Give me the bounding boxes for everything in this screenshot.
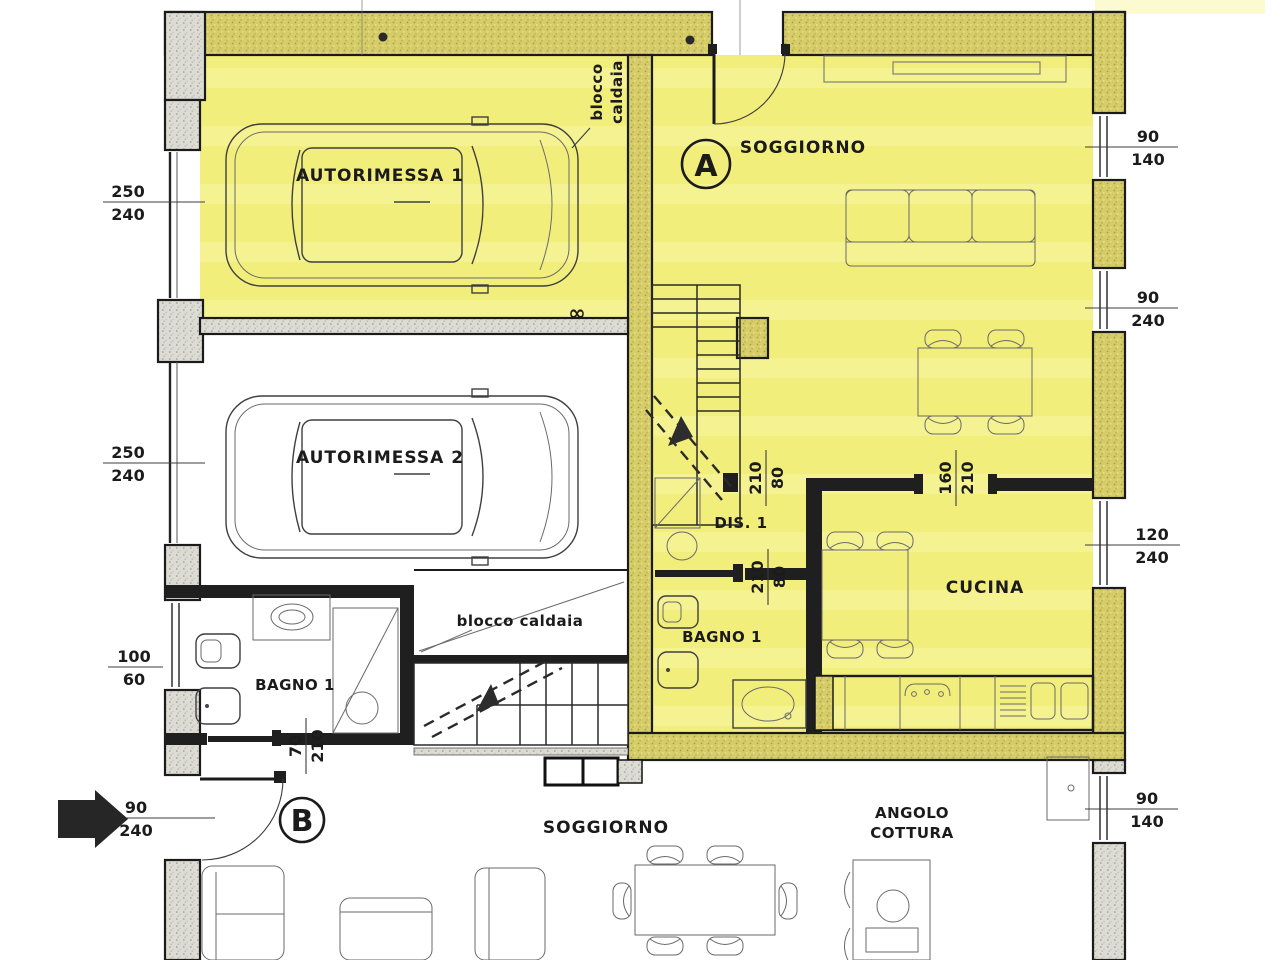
socket-dot-icon	[379, 33, 388, 42]
central-wall-strip	[628, 55, 652, 733]
label-cucina: CUCINA	[946, 578, 1024, 598]
top-left-corner-pier	[165, 12, 205, 100]
dim-text: 80	[770, 566, 789, 588]
unit-separation-wall	[628, 733, 1125, 760]
floor-plan-svg: 250 240 250 240 90 140 90 240 120 240 90…	[0, 0, 1280, 960]
dim-text: 90	[125, 798, 147, 817]
bagno-b-right-wall	[400, 585, 414, 745]
bagno-b-top-wall	[165, 585, 414, 598]
stairs-unit-b	[414, 660, 628, 755]
dim-text: 70	[286, 735, 305, 757]
stair-b-landing-edge	[414, 748, 628, 755]
dim-text: 60	[123, 670, 145, 689]
label-soggiorno-a: SOGGIORNO	[740, 138, 866, 158]
infinity-mark: ∞	[568, 301, 586, 325]
label-bagno1-b: BAGNO 1	[255, 676, 335, 694]
dim-text: 240	[111, 466, 144, 485]
dim-text: 210	[748, 560, 767, 593]
label-autorimessa2: AUTORIMESSA 2	[296, 448, 464, 468]
unit-a-letter: A	[694, 149, 718, 184]
dim-text: 90	[1136, 789, 1158, 808]
top-wall-right	[783, 12, 1125, 55]
dim-text: 240	[111, 205, 144, 224]
dim-text: 250	[111, 443, 144, 462]
label-dis1: DIS. 1	[714, 514, 767, 532]
dim-text: 120	[1135, 525, 1168, 544]
garage-separation-wall	[200, 318, 628, 334]
unit-b-letter: B	[291, 804, 314, 839]
socket-dot-icon	[686, 36, 695, 45]
dim-text: 240	[119, 821, 152, 840]
label-angolo-cottura-1: ANGOLO	[875, 804, 949, 822]
floor-plan-page: 250 240 250 240 90 140 90 240 120 240 90…	[0, 0, 1280, 960]
dim-text: 210	[308, 729, 327, 762]
label-blocco-line1: blocco	[588, 63, 606, 120]
dim-text: 140	[1130, 812, 1163, 831]
label-blocco-line2: caldaia	[608, 60, 626, 124]
stair-pillar	[737, 318, 768, 358]
dim-text: 250	[111, 182, 144, 201]
garage-pier	[158, 300, 203, 362]
dim-text: 240	[1135, 548, 1168, 567]
dim-text: 210	[746, 461, 765, 494]
dim-text: 90	[1137, 288, 1159, 307]
dim-text: 80	[768, 467, 787, 489]
dim-text: 240	[1131, 311, 1164, 330]
dim-text: 210	[958, 461, 977, 494]
label-soggiorno-b: SOGGIORNO	[543, 818, 669, 838]
dim-text: 90	[1137, 127, 1159, 146]
dim-text: 140	[1131, 150, 1164, 169]
bagno-b-door-leaf	[208, 736, 274, 742]
label-autorimessa1: AUTORIMESSA 1	[296, 166, 464, 186]
understair-storage	[545, 758, 642, 785]
bagno-a-door-leaf	[655, 570, 735, 577]
dim-text: 100	[117, 647, 150, 666]
top-wall-left	[165, 12, 712, 55]
label-bagno1-a: BAGNO 1	[682, 628, 762, 646]
label-blocco-caldaia-mid: blocco caldaia	[457, 612, 584, 630]
label-angolo-cottura-2: COTTURA	[870, 824, 953, 842]
dim-text: 160	[936, 461, 955, 494]
